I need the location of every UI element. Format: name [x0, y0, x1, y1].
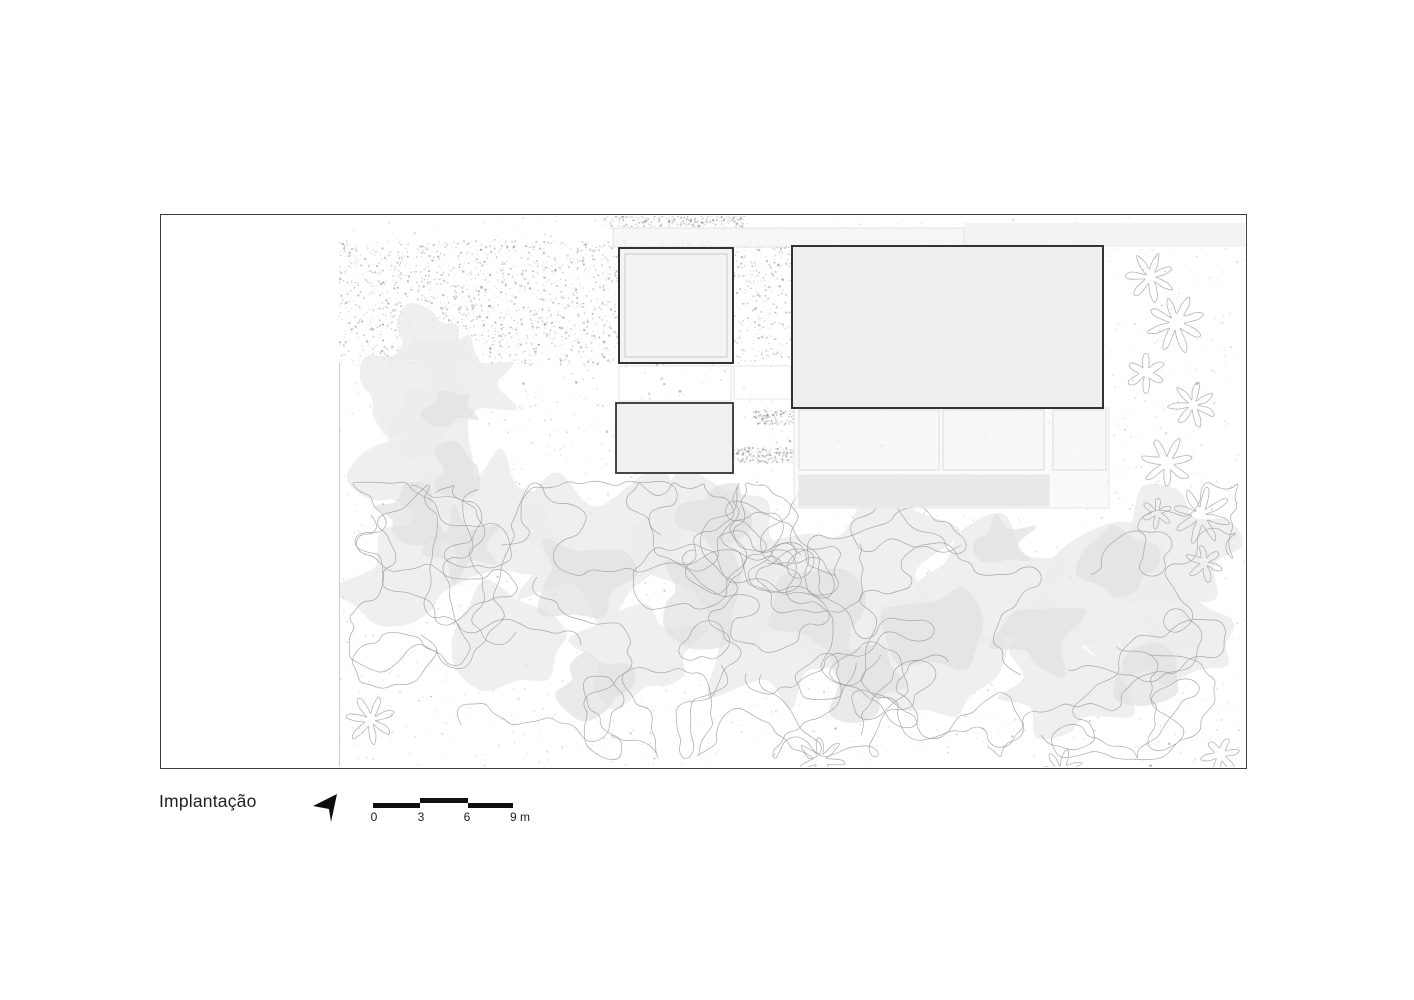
scale-bar-segment — [373, 803, 420, 808]
architectural-drawing-page: Implantação 0 3 6 9 m — [0, 0, 1414, 1000]
scale-label-3: 3 — [418, 810, 425, 824]
paving-area — [799, 410, 939, 470]
paving-area-gray — [799, 475, 1049, 506]
scale-label-9: 9 m — [510, 810, 530, 824]
building-lower-left — [616, 403, 733, 473]
paving-area — [619, 366, 731, 401]
paving-area — [734, 366, 791, 399]
building-main — [792, 246, 1103, 408]
paving-area — [1053, 410, 1106, 470]
plan-frame — [160, 214, 1247, 769]
scale-bar-segment — [468, 803, 513, 808]
paving-area-top — [613, 228, 964, 247]
scale-bar-segment — [420, 798, 468, 803]
drawing-title: Implantação — [159, 791, 257, 812]
paving-area — [943, 410, 1044, 470]
building-upper-left — [619, 248, 733, 363]
site-area — [332, 215, 1246, 768]
site-plan-drawing — [161, 215, 1246, 768]
north-arrow-icon — [313, 789, 339, 825]
scale-label-6: 6 — [464, 810, 471, 824]
tree-canopy-blobs — [332, 303, 1243, 739]
paving-area-top-right — [964, 223, 1246, 247]
scale-label-0: 0 — [371, 810, 378, 824]
